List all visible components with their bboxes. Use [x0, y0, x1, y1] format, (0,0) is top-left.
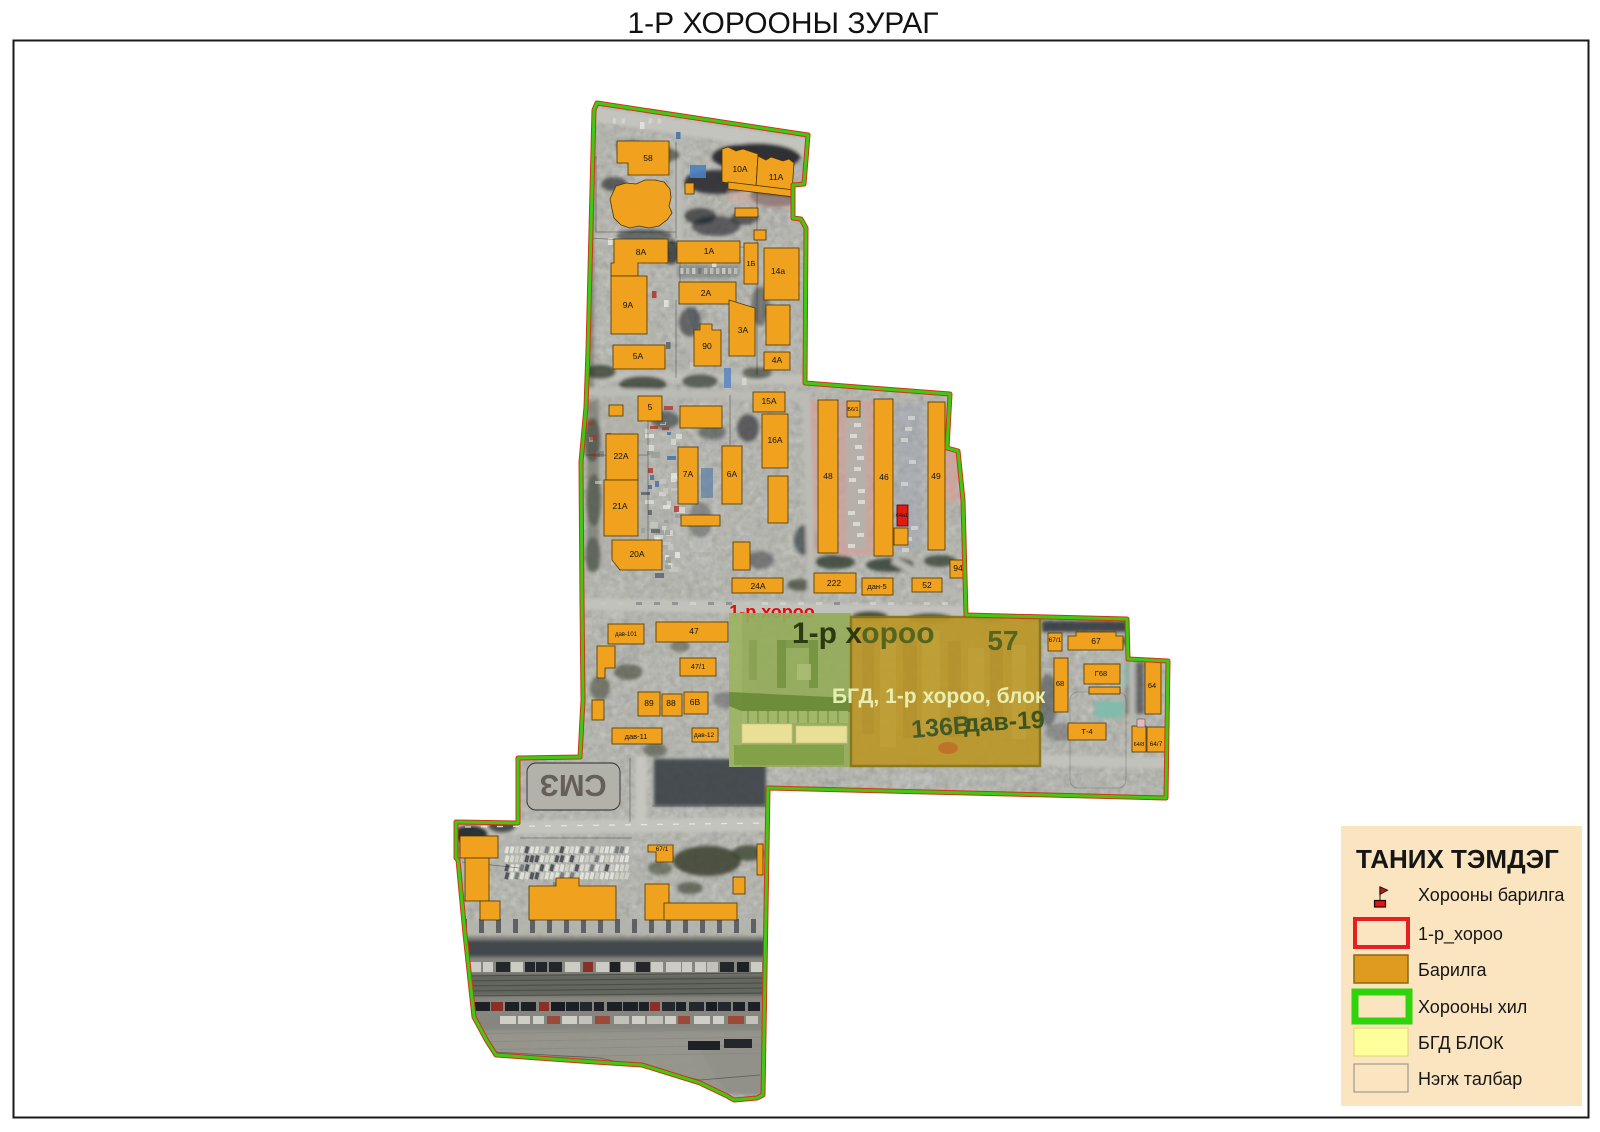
svg-text:ТАНИХ ТЭМДЭГ: ТАНИХ ТЭМДЭГ: [1356, 844, 1559, 874]
svg-text:6В: 6В: [690, 697, 701, 707]
svg-text:47/1: 47/1: [691, 662, 706, 671]
svg-text:58: 58: [643, 153, 653, 163]
svg-text:57: 57: [987, 625, 1018, 656]
svg-text:3A: 3A: [738, 325, 749, 335]
svg-text:90: 90: [702, 341, 712, 351]
svg-text:64: 64: [1148, 681, 1156, 690]
svg-text:Т-4: Т-4: [1081, 727, 1092, 736]
svg-text:67/1: 67/1: [656, 846, 669, 853]
svg-text:5: 5: [648, 402, 653, 412]
svg-text:1Б: 1Б: [746, 259, 755, 268]
svg-text:24A: 24A: [750, 581, 765, 591]
svg-text:дан-5: дан-5: [867, 582, 886, 591]
svg-text:дав-11: дав-11: [625, 732, 648, 741]
svg-text:20A: 20A: [629, 549, 644, 559]
svg-text:Барилга: Барилга: [1418, 960, 1488, 980]
svg-text:6A: 6A: [727, 469, 738, 479]
svg-text:Хорооны хил: Хорооны хил: [1418, 997, 1527, 1017]
svg-text:дав-12: дав-12: [694, 732, 715, 739]
svg-text:5A: 5A: [633, 351, 644, 361]
svg-text:67/1: 67/1: [1049, 637, 1062, 644]
svg-text:1-р_хороо: 1-р_хороо: [1418, 924, 1503, 945]
svg-text:47: 47: [689, 626, 699, 636]
svg-text:10A: 10A: [732, 164, 747, 174]
svg-text:88: 88: [666, 698, 676, 708]
svg-text:94: 94: [953, 563, 963, 573]
svg-text:46: 46: [879, 472, 889, 482]
svg-text:дав-19: дав-19: [963, 706, 1046, 738]
svg-text:49: 49: [931, 471, 941, 481]
svg-text:1-р хороо: 1-р хороо: [792, 617, 935, 650]
svg-text:22A: 22A: [613, 451, 628, 461]
svg-text:16A: 16A: [767, 435, 782, 445]
svg-text:БГД БЛОК: БГД БЛОК: [1418, 1033, 1504, 1053]
svg-text:48: 48: [823, 471, 833, 481]
svg-text:1-Р ХОРООНЫ ЗУРАГ: 1-Р ХОРООНЫ ЗУРАГ: [627, 7, 938, 40]
svg-text:2A: 2A: [701, 288, 712, 298]
svg-text:68: 68: [1056, 679, 1064, 688]
svg-text:Б6/1: Б6/1: [847, 407, 858, 413]
svg-text:64а1: 64а1: [896, 513, 908, 519]
svg-text:21A: 21A: [612, 501, 627, 511]
svg-text:64/8: 64/8: [1134, 742, 1145, 748]
svg-text:14a: 14a: [771, 266, 785, 276]
svg-text:СМЗ: СМЗ: [539, 768, 606, 803]
svg-text:222: 222: [827, 578, 841, 588]
svg-text:67: 67: [1091, 636, 1101, 646]
svg-text:БГД, 1-р хороо, блок: БГД, 1-р хороо, блок: [832, 685, 1046, 708]
svg-text:8A: 8A: [636, 247, 647, 257]
svg-text:89: 89: [644, 698, 654, 708]
svg-text:дав-101: дав-101: [615, 632, 638, 638]
svg-text:Нэгж талбар: Нэгж талбар: [1418, 1069, 1522, 1089]
svg-text:7A: 7A: [683, 469, 694, 479]
svg-text:9A: 9A: [623, 300, 634, 310]
svg-text:15A: 15A: [761, 396, 776, 406]
svg-text:Г68: Г68: [1095, 669, 1107, 678]
svg-text:11A: 11A: [769, 172, 784, 182]
svg-text:1A: 1A: [704, 246, 715, 256]
svg-text:52: 52: [922, 580, 932, 590]
svg-text:Хорооны барилга: Хорооны барилга: [1418, 885, 1565, 905]
svg-text:64/7: 64/7: [1150, 741, 1163, 748]
svg-text:4A: 4A: [772, 355, 783, 365]
